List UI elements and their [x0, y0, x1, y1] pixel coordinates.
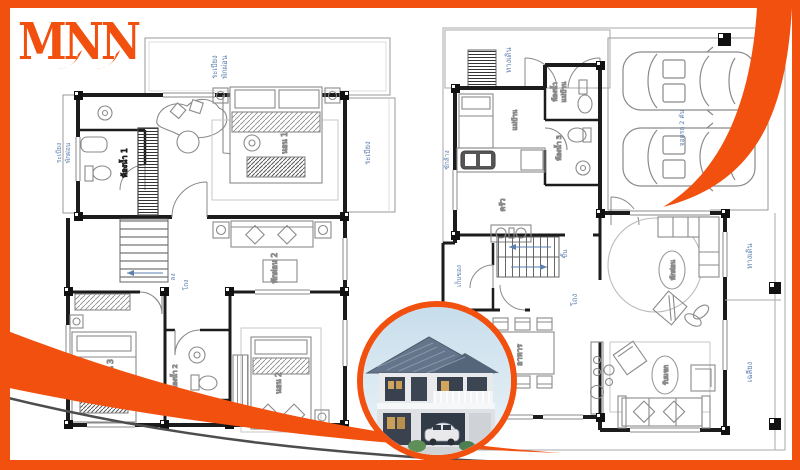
mnn-logo: MNN — [16, 4, 146, 70]
house-photo-inset — [357, 301, 517, 461]
frame-border-bottom — [0, 460, 800, 470]
frame-border-left — [0, 0, 10, 470]
frame-border-right — [792, 0, 800, 470]
mnn-logo-text: MNN — [18, 12, 140, 70]
house-illustration — [363, 307, 511, 455]
swoosh-top-right — [663, 8, 792, 207]
